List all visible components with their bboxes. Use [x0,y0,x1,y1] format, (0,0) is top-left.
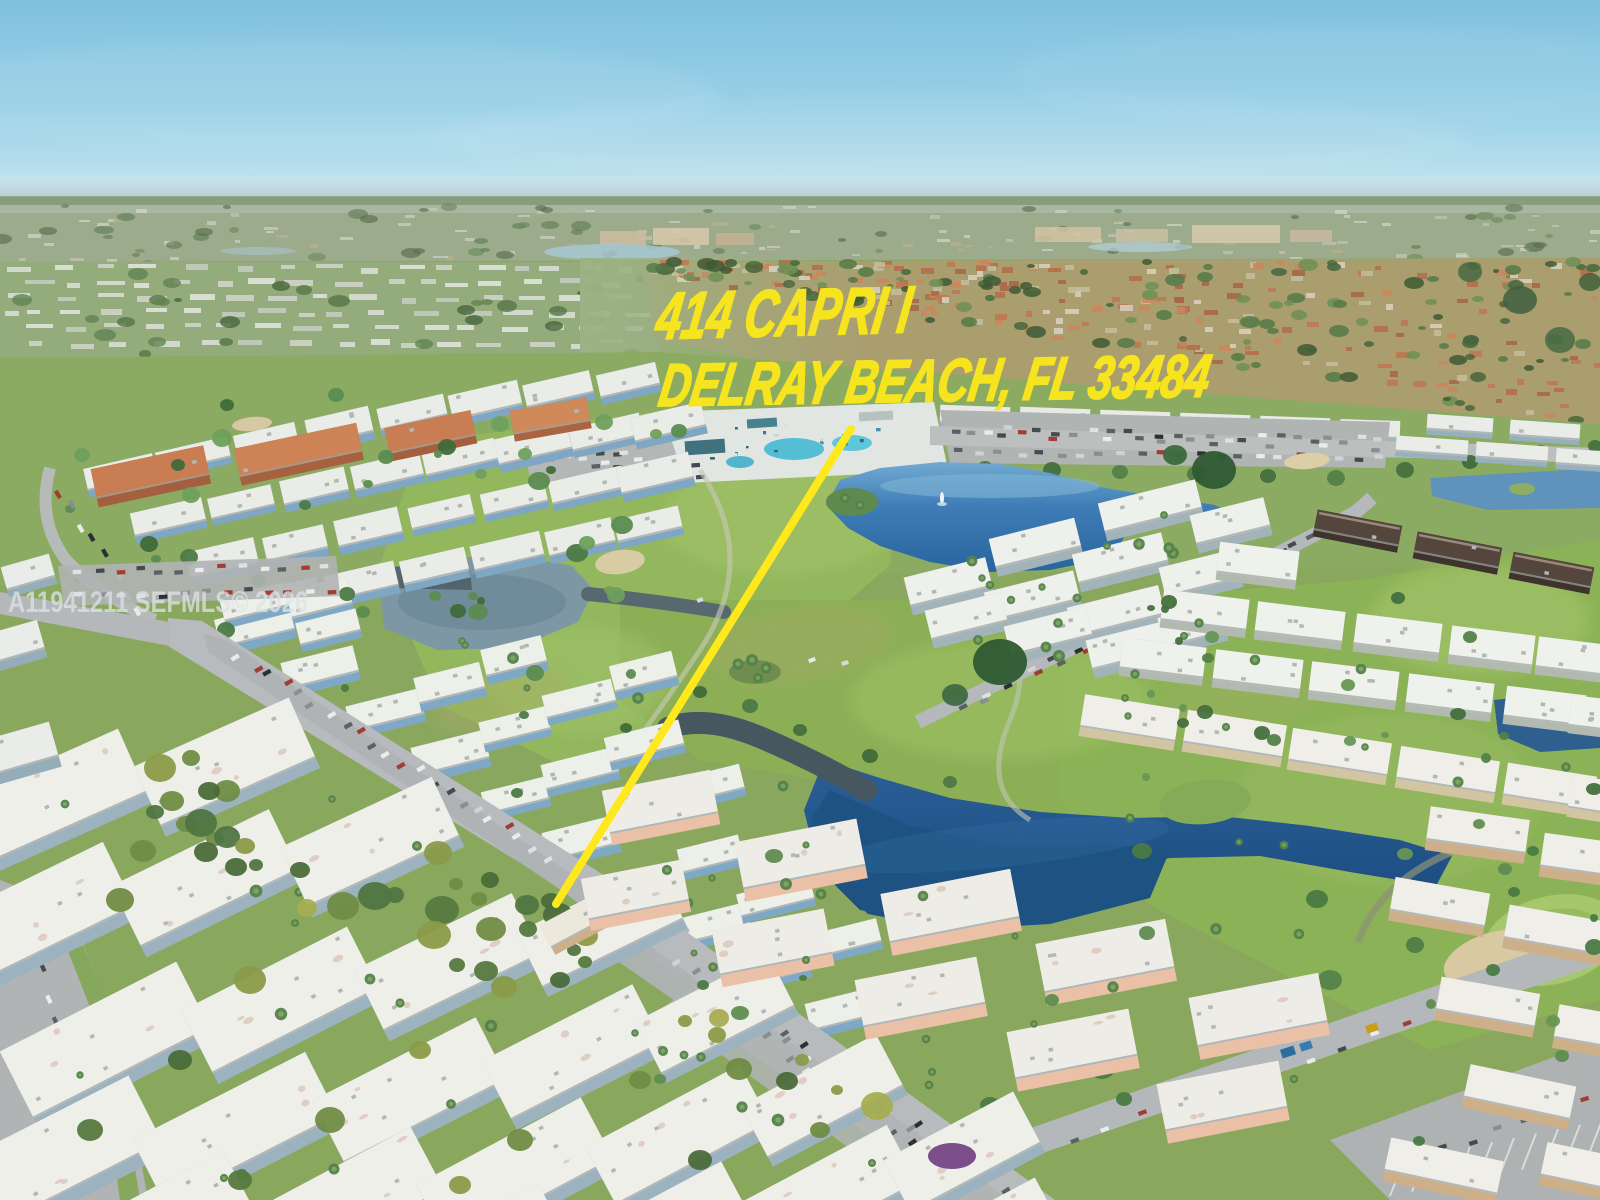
svg-text:DELRAY BEACH, FL 33484: DELRAY BEACH, FL 33484 [655,342,1216,419]
svg-text:A11941211 SEFMLS© 2026: A11941211 SEFMLS© 2026 [8,586,308,619]
svg-text:414 CAPRI I: 414 CAPRI I [650,274,917,354]
